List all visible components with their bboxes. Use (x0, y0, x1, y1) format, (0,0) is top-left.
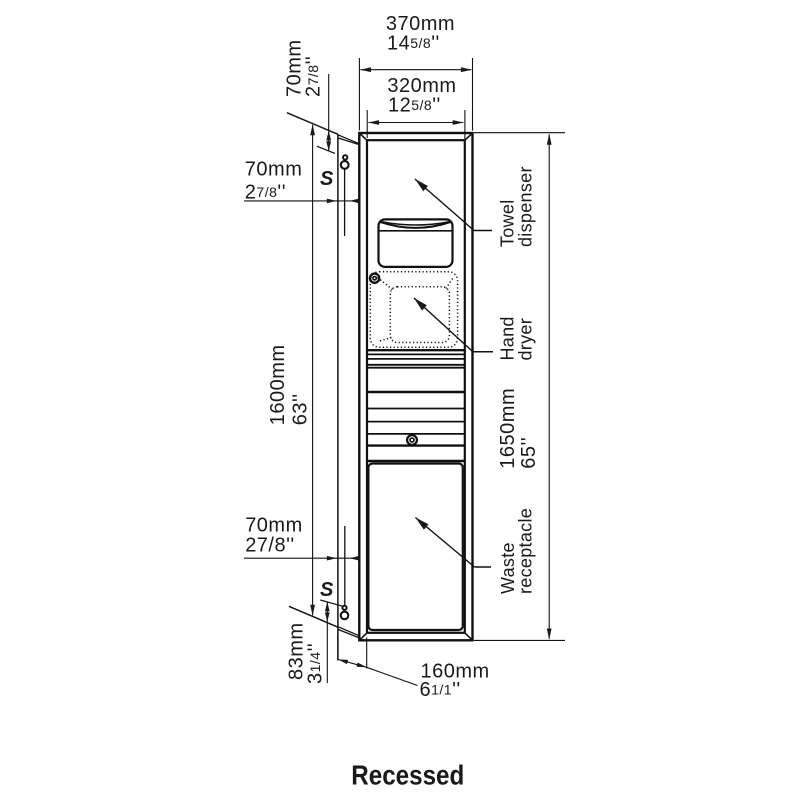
svg-text:27/8'': 27/8'' (245, 535, 295, 557)
svg-text:1650mm: 1650mm (497, 388, 519, 469)
svg-text:Hand: Hand (498, 316, 518, 360)
svg-text:Recessed: Recessed (351, 760, 464, 791)
svg-text:S: S (320, 168, 334, 190)
svg-text:65'': 65'' (518, 437, 540, 469)
svg-text:1600mm: 1600mm (267, 344, 289, 425)
svg-text:63'': 63'' (290, 393, 312, 425)
svg-text:Towel: Towel (498, 199, 518, 247)
svg-text:S: S (320, 579, 334, 601)
svg-text:receptacle: receptacle (516, 508, 536, 594)
svg-text:70mm: 70mm (245, 515, 303, 537)
svg-text:dispenser: dispenser (516, 166, 536, 247)
svg-text:70mm: 70mm (245, 159, 303, 181)
svg-text:dryer: dryer (516, 318, 536, 361)
